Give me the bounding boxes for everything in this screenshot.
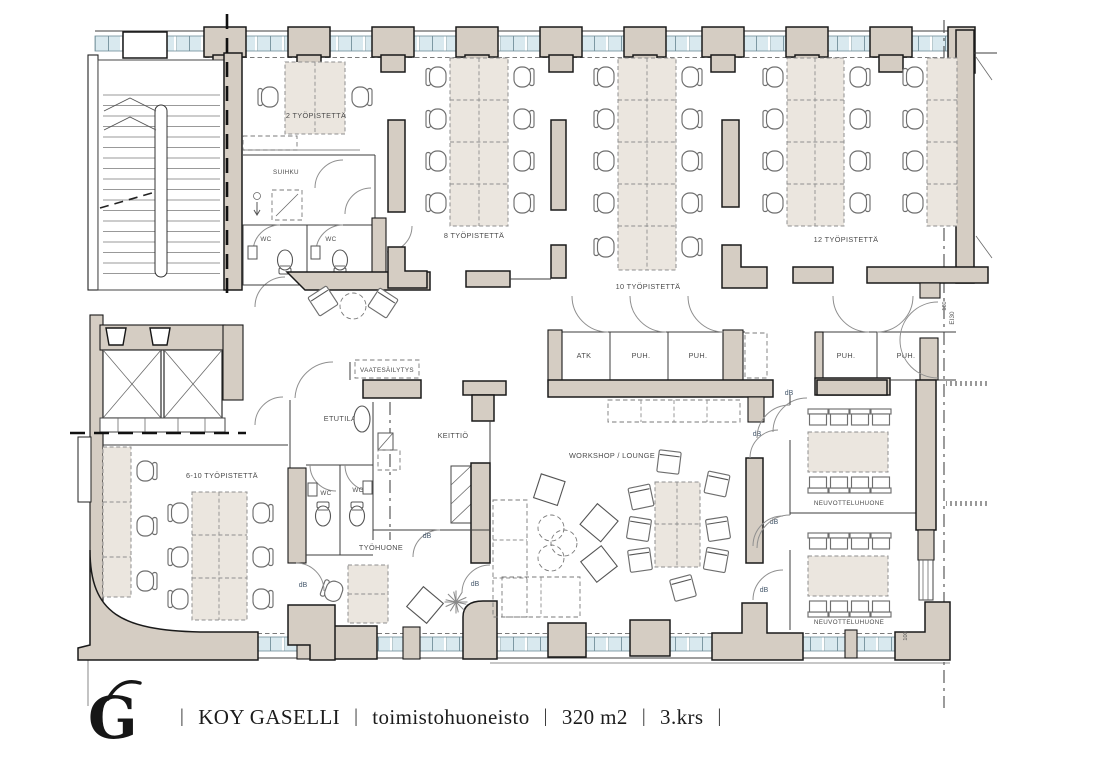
room-label-12tp: 12 TYÖPISTETTÄ (814, 235, 879, 244)
desk-bank-left (103, 447, 131, 597)
db-annotation: dB (770, 519, 779, 526)
property-type: toimistohuoneisto (372, 705, 529, 730)
door-mark: 180 (942, 301, 948, 310)
fire-rating-label: EI30 (949, 311, 956, 325)
meeting-room-lower: NEUVOTTELUHUONE (808, 533, 891, 626)
db-annotation: dB (760, 587, 769, 594)
lounge-table (655, 482, 700, 567)
room-label-wc: WC (325, 236, 336, 243)
meeting-table-lower (808, 556, 888, 596)
separator: | (180, 706, 184, 728)
wall-kitchen-lounge (471, 463, 490, 563)
zone-8-workstations: 8 TYÖPISTETTÄ (426, 58, 534, 240)
logo-accent-icon (100, 679, 146, 703)
desk-bank-centre (192, 492, 247, 620)
room-label-2tp: 2 TYÖPISTETTÄ (286, 111, 346, 120)
room-label-atk: ATK (577, 351, 592, 360)
rooms-atk-puh: ATK PUH. PUH. dB (548, 296, 807, 432)
separator: | (717, 706, 721, 728)
db-annotation: dB (423, 533, 432, 540)
room-label-puh: PUH. (837, 351, 856, 360)
separator: | (544, 706, 548, 728)
room-label-entry: ETUTILA (324, 414, 356, 423)
room-2-workstations: 2 TYÖPISTETTÄ (243, 62, 372, 150)
room-label-shower: SUIHKU (273, 169, 299, 176)
room-label-meeting: NEUVOTTELUHUONE (814, 619, 884, 626)
title-text: | KOY GASELLI | toimistohuoneisto | 320 … (166, 705, 736, 730)
room-label-meeting: NEUVOTTELUHUONE (814, 500, 884, 507)
room-label-lounge: WORKSHOP / LOUNGE (569, 451, 655, 460)
rooms-puh-right: PUH. PUH. 180 EI30 (815, 283, 956, 395)
room-label-cloakroom: VAATESÄILYTYS (360, 366, 414, 374)
room-workshop-lounge: WORKSHOP / LOUNGE dB dB dB (493, 400, 783, 617)
title-block: G | KOY GASELLI | toimistohuoneisto | 32… (86, 681, 736, 753)
room-label-wc: WC (352, 487, 363, 494)
separator: | (354, 706, 358, 728)
db-annotation: dB (299, 582, 308, 589)
room-label-puh: PUH. (632, 351, 651, 360)
zone-12-workstations: 12 TYÖPISTETTÄ (763, 58, 957, 244)
room-6-10-workstations: 6-10 TYÖPISTETTÄ (103, 445, 288, 620)
room-label-6-10tp: 6-10 TYÖPISTETTÄ (186, 471, 258, 480)
zone-10-workstations: 10 TYÖPISTETTÄ (594, 58, 702, 291)
wall-atk-south (548, 380, 773, 397)
room-label-wc: WC (320, 490, 331, 497)
floor-value: 3.krs (660, 705, 703, 730)
db-annotation: dB (785, 390, 794, 397)
room-shower: SUIHKU (243, 150, 375, 225)
meeting-room-upper: NEUVOTTELUHUONE (808, 409, 891, 507)
meeting-table-upper (808, 432, 888, 472)
room-label-office: TYÖHUONE (359, 543, 403, 552)
gaselli-logo: G (86, 681, 144, 753)
room-label-puh: PUH. (897, 351, 916, 360)
room-label-wc: WC (260, 236, 271, 243)
lounge-lockers (608, 400, 740, 422)
floor-plan-page: 100 2 TYÖPISTETTÄ (0, 0, 1099, 760)
stair-handrail (155, 105, 167, 277)
db-annotation: dB (471, 581, 480, 588)
room-label-puh: PUH. (689, 351, 708, 360)
company-name: KOY GASELLI (198, 705, 340, 730)
wall-lounge-east (746, 458, 763, 563)
dimension-mark: 100 (903, 631, 909, 640)
area-value: 320 m2 (562, 705, 628, 730)
stair-door-arc (255, 277, 285, 307)
rooms-meeting: NEUVOTTELUHUONE NEUVOTTELUHUONE (757, 380, 936, 630)
wall-meeting-east (916, 380, 936, 530)
floor-plan-drawing: 100 2 TYÖPISTETTÄ (0, 0, 1099, 760)
room-label-kitchen: KEITTIÖ (438, 431, 469, 440)
separator: | (642, 706, 646, 728)
room-label-10tp: 10 TYÖPISTETTÄ (616, 282, 681, 291)
room-label-8tp: 8 TYÖPISTETTÄ (444, 231, 504, 240)
